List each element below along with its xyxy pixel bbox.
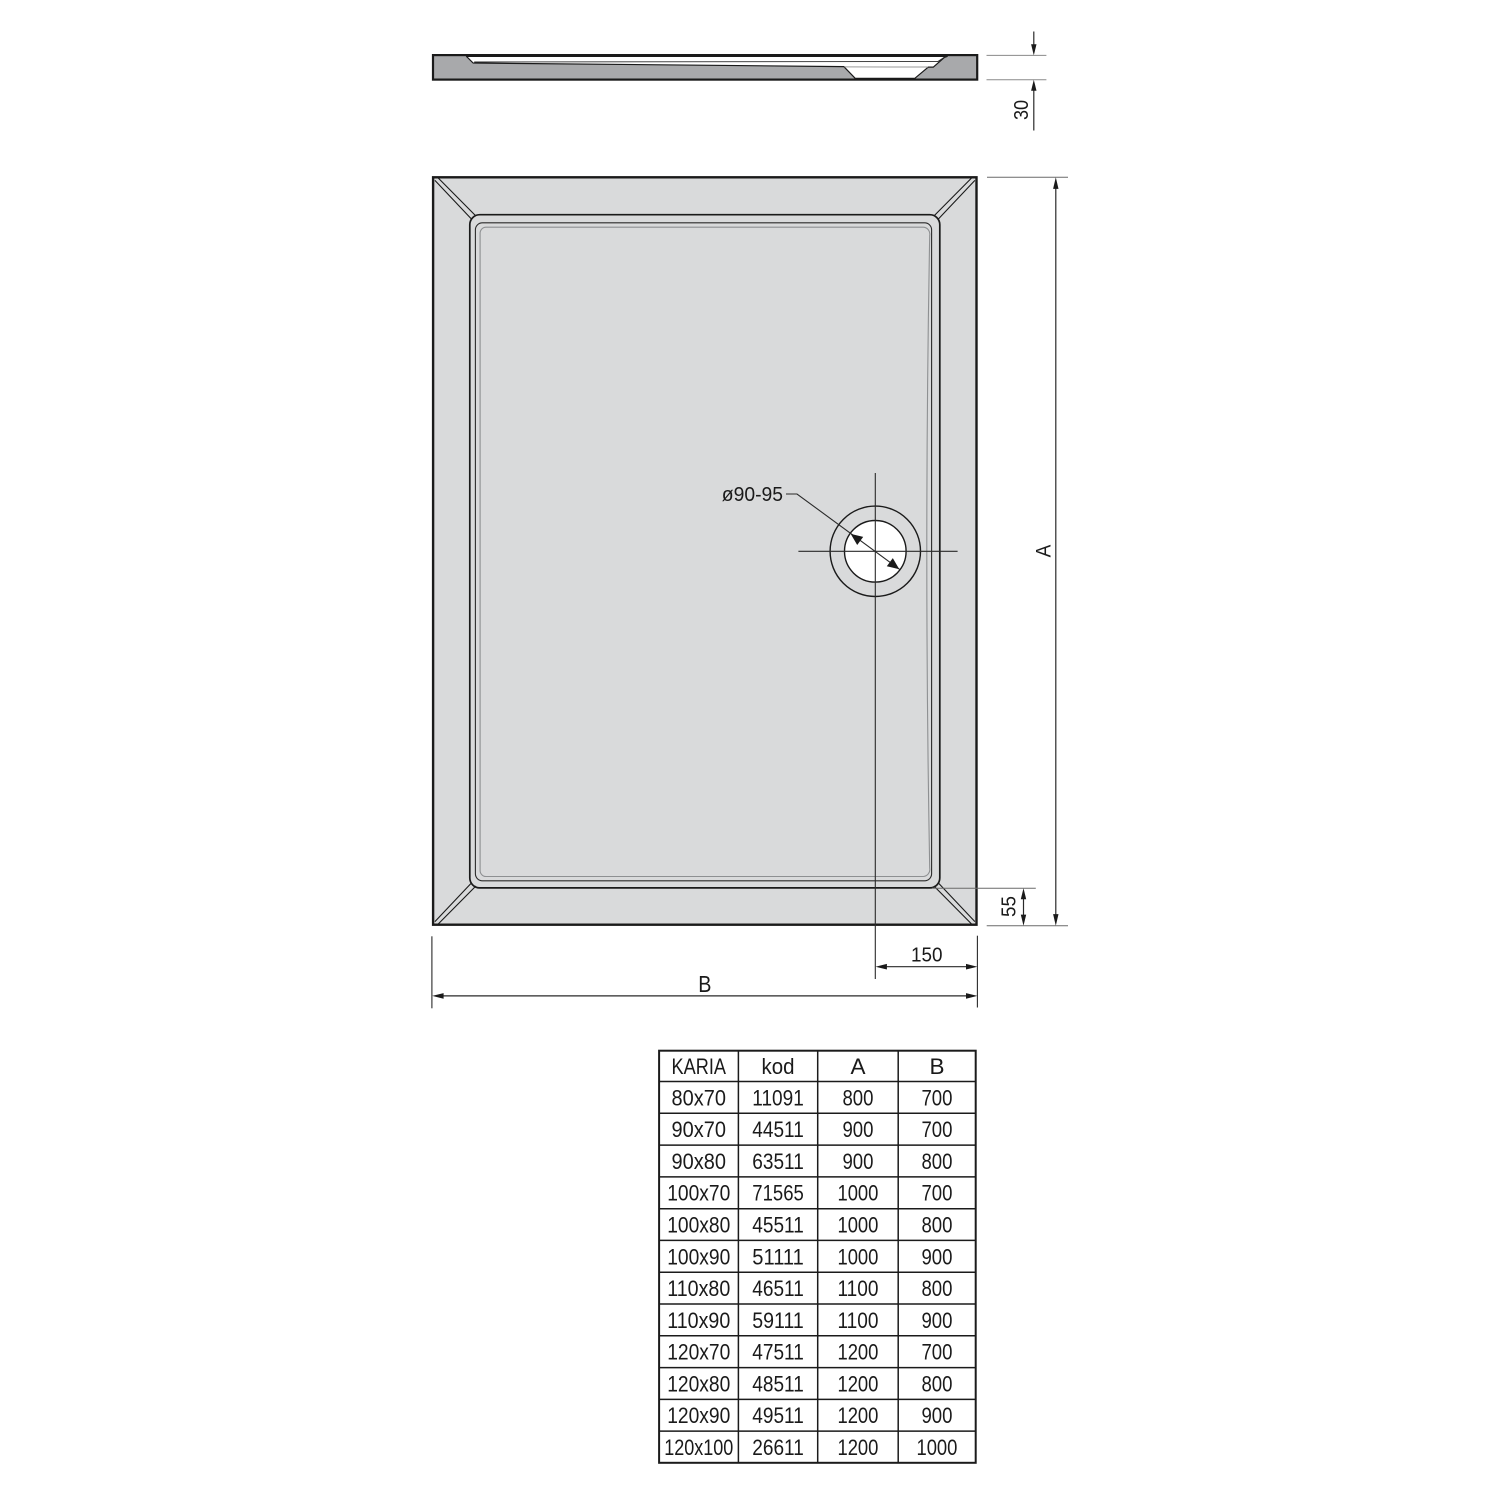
svg-text:90x80: 90x80 <box>672 1149 726 1174</box>
svg-text:700: 700 <box>921 1340 952 1365</box>
svg-text:B: B <box>929 1054 944 1079</box>
svg-text:700: 700 <box>921 1117 952 1142</box>
svg-text:1000: 1000 <box>916 1435 957 1460</box>
svg-text:49511: 49511 <box>752 1403 804 1428</box>
svg-text:1200: 1200 <box>837 1340 878 1365</box>
svg-text:ø90-95: ø90-95 <box>722 484 783 506</box>
svg-text:44511: 44511 <box>752 1117 804 1142</box>
svg-text:46511: 46511 <box>752 1276 804 1301</box>
svg-text:700: 700 <box>921 1181 952 1206</box>
svg-text:1000: 1000 <box>837 1244 878 1269</box>
svg-text:1200: 1200 <box>837 1403 878 1428</box>
svg-text:26611: 26611 <box>752 1435 804 1460</box>
svg-text:1100: 1100 <box>837 1276 878 1301</box>
svg-text:55: 55 <box>999 896 1021 917</box>
svg-text:150: 150 <box>911 945 943 967</box>
svg-text:900: 900 <box>842 1149 873 1174</box>
svg-text:120x90: 120x90 <box>667 1403 730 1428</box>
svg-text:51111: 51111 <box>752 1244 804 1269</box>
svg-text:A: A <box>850 1054 865 1079</box>
svg-text:A: A <box>1032 544 1056 557</box>
svg-text:800: 800 <box>921 1371 952 1396</box>
svg-text:120x80: 120x80 <box>667 1371 730 1396</box>
svg-text:45511: 45511 <box>752 1213 804 1238</box>
svg-text:1200: 1200 <box>837 1371 878 1396</box>
svg-text:100x70: 100x70 <box>667 1181 730 1206</box>
svg-text:KARIA: KARIA <box>672 1054 726 1079</box>
svg-text:800: 800 <box>842 1085 873 1110</box>
svg-text:110x80: 110x80 <box>667 1276 730 1301</box>
svg-text:1000: 1000 <box>837 1181 878 1206</box>
svg-text:900: 900 <box>842 1117 873 1142</box>
svg-text:800: 800 <box>921 1276 952 1301</box>
svg-text:800: 800 <box>921 1213 952 1238</box>
svg-text:900: 900 <box>921 1308 952 1333</box>
svg-text:1200: 1200 <box>837 1435 878 1460</box>
svg-text:100x80: 100x80 <box>667 1213 730 1238</box>
svg-text:47511: 47511 <box>752 1340 804 1365</box>
svg-text:B: B <box>698 971 711 997</box>
svg-text:kod: kod <box>762 1054 795 1079</box>
svg-text:71565: 71565 <box>752 1181 804 1206</box>
svg-text:900: 900 <box>921 1403 952 1428</box>
svg-text:120x70: 120x70 <box>667 1340 730 1365</box>
svg-text:30: 30 <box>1011 100 1033 120</box>
svg-text:63511: 63511 <box>752 1149 804 1174</box>
svg-text:120x100: 120x100 <box>664 1435 733 1460</box>
svg-text:110x90: 110x90 <box>667 1308 730 1333</box>
svg-text:48511: 48511 <box>752 1371 804 1396</box>
svg-text:800: 800 <box>921 1149 952 1174</box>
svg-text:11091: 11091 <box>752 1085 804 1110</box>
svg-text:100x90: 100x90 <box>667 1244 730 1269</box>
svg-text:90x70: 90x70 <box>672 1117 726 1142</box>
svg-text:1100: 1100 <box>837 1308 878 1333</box>
svg-text:700: 700 <box>921 1085 952 1110</box>
svg-text:900: 900 <box>921 1244 952 1269</box>
svg-text:80x70: 80x70 <box>672 1085 726 1110</box>
svg-text:59111: 59111 <box>752 1308 804 1333</box>
svg-text:1000: 1000 <box>837 1213 878 1238</box>
